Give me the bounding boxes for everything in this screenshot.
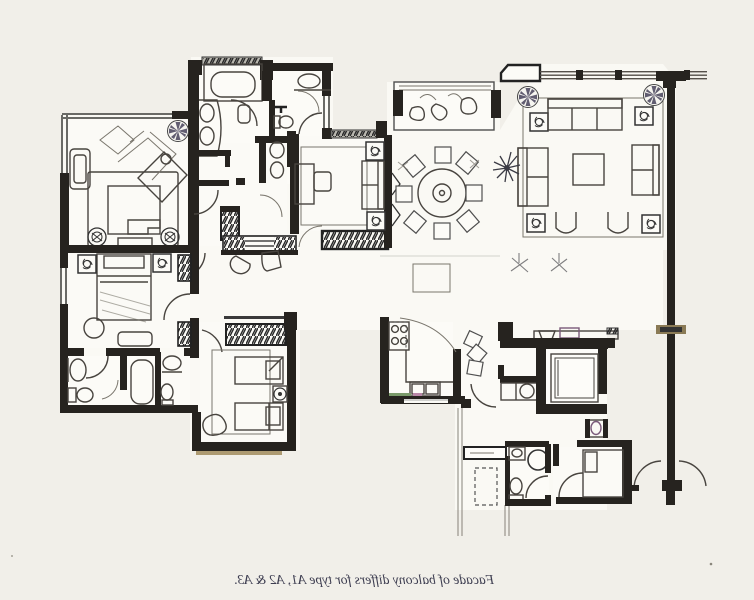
svg-text:Facade of balcony differs for: Facade of balcony differs for type A1, A… [234, 572, 495, 587]
